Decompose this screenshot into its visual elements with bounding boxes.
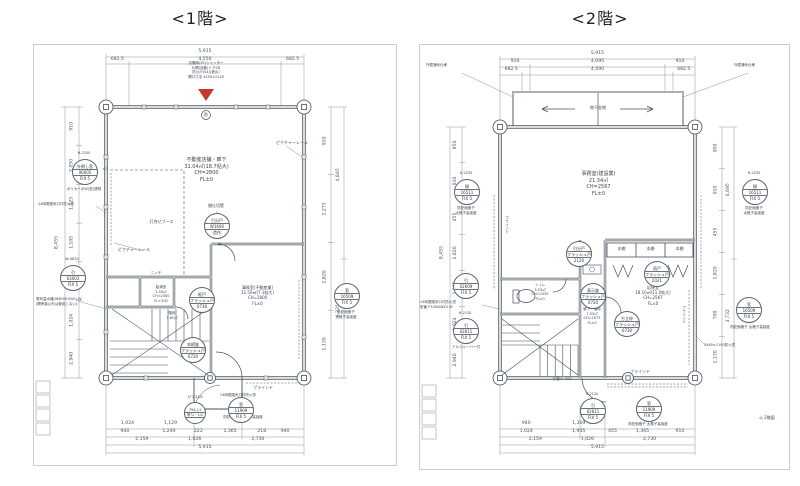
window-tag-right-lower: 窓 16509 FIX 5 bbox=[736, 297, 762, 323]
dim2-top-total: 5,915 bbox=[500, 52, 695, 57]
tag-line: フラッシュ戸 bbox=[190, 297, 214, 304]
blind-right-label: ブラインド bbox=[682, 295, 687, 335]
entrance-marker-triangle bbox=[198, 89, 214, 101]
glass-cb-note: ガラスCB bbox=[174, 395, 216, 400]
tag-line: FIX 5 bbox=[454, 335, 478, 340]
tag-line: 16509 bbox=[335, 293, 359, 300]
tag-line: フラッシュ戸 bbox=[581, 293, 605, 300]
dim-value: 2,159 bbox=[500, 438, 571, 443]
dim-value: 1,365 bbox=[203, 430, 258, 435]
dim-value: 5,915 bbox=[500, 446, 695, 451]
dim2-top-row2: 9104,095910 bbox=[500, 60, 695, 65]
room-label-reception: 応接室 18.10㎡(11.0帖大) CH=2567 FL±0 bbox=[618, 285, 688, 306]
tag-line: FIX 5 bbox=[737, 314, 761, 319]
window-left2-height-note: W-0830 bbox=[52, 257, 92, 262]
window-right-below-note: 防犯面格子 太格子高強度 bbox=[322, 310, 370, 319]
tag-line: W1690 bbox=[205, 223, 229, 230]
room-label-stair: 階段 1.65㎡ bbox=[152, 311, 192, 320]
water-heater-note: 電気温水器(W600/H200)-W (関係者以外は使用しない) bbox=[36, 297, 106, 306]
dim2-bottom-row2a: 1,0241,935 bbox=[500, 430, 605, 435]
dim-top-row: 682.54,550682.5 bbox=[106, 58, 304, 63]
room-label-office: 事務室(不動産業) 11.59㎡(7.1帖大) CH=2800 FL±0 bbox=[230, 285, 285, 306]
dim-value: 682.5 bbox=[106, 58, 129, 63]
dim-value: 1,820 bbox=[292, 272, 360, 281]
dim-bottom-row3: 2,1591,0262,730 bbox=[106, 438, 304, 443]
room-label-toilet: トイレ 3.53㎡ CH=2430 FL±0 bbox=[520, 283, 560, 301]
tag-line: 0730 bbox=[615, 328, 639, 333]
dim-value: 1,024 bbox=[500, 430, 553, 435]
tag-line: FIX 5 bbox=[454, 290, 478, 295]
tag-line: FIX 5 bbox=[637, 413, 661, 418]
text-line: 太格子高強度 bbox=[726, 211, 782, 216]
tag-line: 甲'U・1/2 bbox=[185, 412, 205, 418]
tag-line: 02609 bbox=[454, 283, 478, 290]
dim-value: 5,915 bbox=[106, 446, 304, 451]
window-tag-left-outer: 掃 16511 FIX 5 bbox=[454, 179, 480, 205]
fire-window-door-label: 24時間換気口付防火窓 bbox=[220, 393, 290, 398]
floor1-doors bbox=[176, 244, 242, 409]
dim2-top-row3: 682.54,590682.5 bbox=[500, 68, 695, 73]
handrail-label: 手摺H=700 bbox=[540, 377, 584, 382]
dim-value: 910 bbox=[500, 60, 530, 65]
shelf-label-2: 本棚 bbox=[637, 246, 664, 251]
dim-value: 4,590 bbox=[522, 68, 672, 73]
fire-window-left-label: 24時間換気口付防火窓 bbox=[38, 202, 102, 207]
floor2-legend-boxes bbox=[422, 385, 436, 439]
blind-left-label: ブラインド bbox=[505, 205, 510, 245]
partition-label: 間仕切壁 bbox=[194, 203, 238, 208]
text-line: FL±0 bbox=[230, 301, 285, 306]
room-label-office2: 事務室(建設業) 21.34㎡ CH=2567 FL±0 bbox=[556, 171, 641, 197]
dim-value: 682.5 bbox=[281, 58, 304, 63]
dim-bottom-row2: 9401,2492221,365218940 bbox=[106, 430, 304, 435]
dim-value: 8,455 bbox=[317, 248, 568, 258]
dim-left-outer: 8,455 bbox=[52, 107, 62, 378]
dim-value: 940 bbox=[266, 430, 304, 435]
window-tag-left2: 引 03003 FIX 5 bbox=[60, 265, 86, 291]
tag-line: FIX 5 bbox=[229, 414, 253, 419]
window-tag-right: 窓 16509 FIX 5 bbox=[334, 283, 360, 309]
dim-value: 2,159 bbox=[106, 438, 178, 443]
balcony-label: 物干金物 bbox=[578, 105, 618, 110]
dim-bottom-row1: 1,0241,129 bbox=[106, 422, 192, 427]
tag-line: 16511 bbox=[743, 189, 767, 196]
tag-line: FIX 5 bbox=[581, 415, 605, 420]
window-left-height-note: H-2200 bbox=[64, 151, 104, 156]
window-tag-bottom: 窓 11909 FIX 5 bbox=[228, 397, 254, 423]
text-line: FL+200 bbox=[138, 299, 184, 304]
floor2-stairs bbox=[502, 319, 578, 376]
dim-value: 5,915 bbox=[106, 50, 304, 55]
tag-line: フラッシュ戸 bbox=[181, 347, 205, 354]
window-bottom-left-note: H-2120 bbox=[572, 392, 612, 397]
room-label-niche: ニッチ bbox=[136, 271, 176, 276]
floor2-sheet: 外壁通気仕様 外壁通気仕様 物干金物 5,915 9104,095910 682… bbox=[419, 44, 790, 470]
text-line: FL±0 bbox=[570, 321, 614, 326]
dim-value: 2,275 bbox=[292, 204, 360, 213]
dim-value: 1,249 bbox=[144, 430, 194, 435]
text-line: FL±0 bbox=[520, 297, 560, 302]
window-left-below-note: ポリカーボW(型)透明 bbox=[52, 187, 116, 192]
louver-note: アルミルーバー付 bbox=[436, 345, 496, 350]
partition-door-tag: 引分戸 W1690 造作 bbox=[204, 213, 230, 239]
dim-value: 1,026 bbox=[571, 438, 605, 443]
window-tag-bottom-left2f: 引 02611 FIX 5 bbox=[580, 398, 606, 424]
text-line: 型番 FY-08XWX3-W bbox=[420, 305, 480, 310]
door-tag-toilet: 表示錠 フラッシュ戸 0720 bbox=[580, 283, 606, 309]
dim-value: 5,915 bbox=[500, 52, 695, 57]
dim2-bottom-row3: 2,1591,0262,730 bbox=[500, 438, 695, 443]
footer-note: ◎ 2階図 bbox=[746, 415, 788, 420]
floor1-title: <1階> bbox=[0, 5, 400, 29]
dim-value: 910 bbox=[665, 430, 695, 435]
door-tag-center2f: 引分戸 フラッシュ戸 2120 bbox=[566, 241, 592, 267]
entrance-mark-char: 防 bbox=[202, 112, 210, 117]
dim-value: 4,695 bbox=[666, 185, 792, 194]
text-line: FL±0 bbox=[164, 177, 249, 184]
dim-right-inner: 9102,2751,8201,130 bbox=[321, 107, 330, 378]
shelf-label-3: 本棚 bbox=[666, 246, 693, 251]
floorplan-page: <1階> <2階> bbox=[0, 0, 800, 486]
text-line: 開口寸法 4550×2140 bbox=[164, 75, 248, 80]
tag-line: フラッシュ戸 bbox=[645, 271, 669, 278]
dim-value: 2,730 bbox=[212, 438, 304, 443]
window-right-outer-note: H-2230 bbox=[734, 171, 774, 176]
tag-line: 0720 bbox=[181, 354, 205, 359]
entrance-note: 店舗用(ST)シャッター 片開(自動)ドアSD 防火戸(S4)(遮炎) 開口寸法… bbox=[164, 61, 248, 79]
text-line: FL±0 bbox=[556, 191, 641, 198]
tag-line: FIX 5 bbox=[743, 196, 767, 201]
room-label-booth: 打合せブース bbox=[134, 219, 189, 224]
picture-rail-right-label: ピクチャーレール bbox=[276, 140, 336, 145]
door-tag-stair: 框戸 フラッシュ戸 0730 bbox=[189, 287, 215, 313]
blind-bottom-label: ブラインド bbox=[620, 369, 660, 374]
tag-line: FIX 5 bbox=[61, 282, 85, 287]
dim-value: 940 bbox=[500, 422, 553, 427]
fire-window-left2f-label: 24時間換気口付防火窓 型番 FY-08XWX3-W bbox=[420, 300, 480, 309]
dim-bottom-total: 5,915 bbox=[106, 446, 304, 451]
dim-value: 1,935 bbox=[553, 430, 606, 435]
tag-line: 2120 bbox=[567, 258, 591, 263]
window-tag-bottom-right2f: 窓 11909 FIX 5 bbox=[636, 396, 662, 422]
room-label-main: 不動産店舗・廊下 31.04㎡(18.7帖大) CH=2800 FL±0 bbox=[164, 157, 249, 183]
dim-top-total: 5,915 bbox=[106, 50, 304, 55]
dim-value: 2,730 bbox=[604, 438, 695, 443]
window-left-mult: ×3 bbox=[98, 167, 112, 172]
tag-line: 0720 bbox=[581, 300, 605, 305]
dim-value: 1,129 bbox=[149, 422, 192, 427]
dim-value: 455 bbox=[605, 430, 620, 435]
dim2-right-inner: 9509104551,8207001,130 bbox=[712, 127, 721, 378]
window-tag-left-bottom2f: 引 02611 FIX 5 bbox=[453, 318, 479, 344]
window-left-outer-note: H-2230 bbox=[446, 171, 486, 176]
dim-value: 1,026 bbox=[178, 438, 212, 443]
tag-line: 16509 bbox=[737, 307, 761, 314]
door-tag-main: 本締錠 フラッシュ戸 0720 bbox=[180, 337, 206, 363]
window-bottom-right-below: 防犯面格子 太格子高強度 bbox=[616, 422, 680, 427]
dim2-right-outer: 4,6953,732 bbox=[724, 127, 733, 378]
door-tag-reception: 方立枠 フラッシュ戸 0730 bbox=[614, 311, 640, 337]
window-right-outer-below: 防犯面格子 太格子高強度 bbox=[726, 206, 782, 215]
dim-value: 1,130 bbox=[292, 340, 360, 349]
tag-line: FIX 5 bbox=[455, 196, 479, 201]
dim-value: 910 bbox=[665, 60, 695, 65]
dim-value: 4,550 bbox=[129, 58, 281, 63]
tag-line: 03003 bbox=[61, 275, 85, 282]
window-right-lower-below: 防犯面格子 太格子高強度 bbox=[720, 325, 780, 330]
dim-value: 218 bbox=[257, 430, 266, 435]
tag-line: 06005 bbox=[73, 169, 97, 176]
dim-value: 8,455 bbox=[0, 238, 193, 248]
corner-note-right: 外壁通気仕様 bbox=[734, 63, 788, 68]
tag-line: 2021 bbox=[645, 278, 669, 283]
tag-line: 造作 bbox=[205, 230, 229, 235]
dim-value: 682.5 bbox=[673, 68, 695, 73]
tag-line: 16511 bbox=[455, 189, 479, 196]
dim-value: 1,024 bbox=[106, 422, 149, 427]
tag-line: 02611 bbox=[454, 328, 478, 335]
dim-value: 682.5 bbox=[500, 68, 522, 73]
text-line: 太格子高強度 bbox=[438, 211, 494, 216]
text-line: (関係者以外は使用しない) bbox=[36, 302, 106, 307]
corner-note-left: 外壁通気仕様 bbox=[426, 63, 480, 68]
floor2-title: <2階> bbox=[400, 5, 800, 29]
text-line: FL±0 bbox=[618, 301, 688, 306]
tag-line: 02611 bbox=[581, 408, 605, 415]
dim-value: 222 bbox=[194, 430, 203, 435]
room-label-hall2: 廊下・階段 7.33㎡ CH=2573 FL±0 bbox=[570, 307, 614, 325]
blind-label-1f: ブラインド bbox=[248, 385, 278, 390]
glass-cb-tag: 794-11 甲'U・1/2 bbox=[184, 402, 206, 424]
window-tag-right-outer: 掃 16511 FIX 5 bbox=[742, 179, 768, 205]
tag-line: フラッシュ戸 bbox=[567, 251, 591, 258]
tag-line: 11909 bbox=[637, 406, 661, 413]
dim2-bottom-total: 5,915 bbox=[500, 446, 695, 451]
text-line: 1.65㎡ bbox=[152, 316, 192, 321]
text-line: 太格子高強度 bbox=[322, 315, 370, 320]
tag-line: FIX 5 bbox=[335, 300, 359, 305]
dim-value: 4,095 bbox=[530, 60, 665, 65]
tag-line: FIX 5 bbox=[73, 176, 97, 181]
shelf-label-1: 本棚 bbox=[608, 246, 635, 251]
dim2-left-outer: 8,455 bbox=[437, 127, 447, 378]
dim2-bottom-row2b: 4551,365910 bbox=[605, 430, 695, 435]
floor1-legend-boxes bbox=[36, 381, 50, 435]
window-left-bottom-note: H-2130 bbox=[445, 311, 485, 316]
picture-rail-left-label: ピクチャーレール bbox=[118, 247, 178, 252]
door-tag-reception-top: 雨戸 フラッシュ戸 2021 bbox=[644, 261, 670, 287]
tag-line: フラッシュ戸 bbox=[615, 321, 639, 328]
tag-line: 0730 bbox=[190, 304, 214, 309]
room-label-kitchen: 給湯室 2.50㎡ CH=2400 FL+200 bbox=[138, 285, 184, 303]
fire-window-right-label: 2480×1100防火窓 bbox=[704, 343, 784, 348]
dim-right-outer: 4,8454,325 bbox=[334, 107, 343, 378]
window-left-outer-below: 防犯面格子 太格子高強度 bbox=[438, 206, 494, 215]
dim-value: 1,365 bbox=[620, 430, 665, 435]
tag-line: 11909 bbox=[229, 407, 253, 414]
window-tag-left: 外倒し窓 06005 FIX 5 bbox=[72, 159, 98, 185]
dim-value: 4,845 bbox=[271, 170, 407, 179]
window-tag-left-top2f: 引 02609 FIX 5 bbox=[453, 273, 479, 299]
dim-value: 940 bbox=[106, 430, 144, 435]
